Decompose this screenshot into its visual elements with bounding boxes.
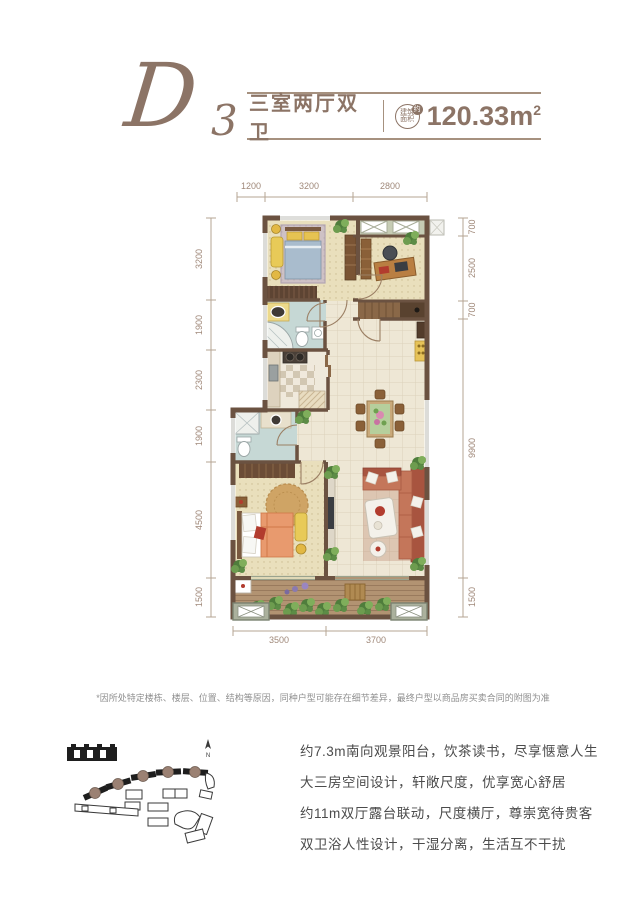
dim-right-1: 700	[467, 219, 477, 234]
north-arrow-icon: N	[205, 739, 211, 759]
highlighted-towers	[83, 767, 208, 801]
outline-buildings	[75, 773, 214, 843]
badge-approx-mark: 约	[412, 104, 423, 115]
dim-left-1: 3200	[195, 249, 204, 269]
area-value: 120.33m2	[427, 101, 541, 132]
plan-code-sub: 3	[211, 100, 238, 142]
feature-line: 双卫浴人性设计，干湿分离，生活互不干扰	[300, 837, 600, 853]
title-block: 三室两厅双卫 建筑 面积 约 120.33m2	[247, 92, 541, 140]
feature-line: 约7.3m南向观景阳台，饮茶读书，尽享惬意人生	[300, 744, 600, 760]
dim-top-2: 3200	[299, 181, 319, 191]
title-divider	[383, 100, 384, 132]
floor-plan: 1200 3200 2800 3200 1900 2300 1900 4500 …	[195, 175, 485, 645]
kitchen-slider-2	[328, 365, 331, 377]
kitchen-slider	[325, 355, 328, 367]
site-plan: N	[60, 733, 235, 861]
feature-list: 约7.3m南向观景阳台，饮茶读书，尽享惬意人生 大三房空间设计，轩敞尺度，优享宽…	[300, 744, 600, 868]
dim-left-2: 1900	[195, 315, 204, 335]
dim-right-2: 2500	[467, 258, 477, 278]
layout-label: 三室两厅双卫	[249, 87, 374, 145]
dim-bottom-2: 3700	[366, 635, 386, 645]
feature-line: 约11m双厅露台联动，尺度横厅，尊崇宽待贵客	[300, 806, 600, 822]
dim-top-1: 1200	[241, 181, 261, 191]
feature-line: 大三房空间设计，轩敞尺度，优享宽心舒居	[300, 775, 600, 791]
entry-closets	[358, 301, 427, 319]
dim-right-3: 700	[467, 302, 477, 317]
dim-left-6: 1500	[195, 587, 204, 607]
north-label: N	[206, 753, 210, 759]
dim-right-4: 9900	[467, 438, 477, 458]
dim-top-3: 2800	[380, 181, 400, 191]
dim-bottom-1: 3500	[269, 635, 289, 645]
dim-right-5: 1500	[467, 587, 477, 607]
badge-line2: 面积	[400, 116, 414, 124]
brochure-page: D 3 三室两厅双卫 建筑 面积 约 120.33m2	[0, 0, 640, 920]
building-strip	[67, 744, 117, 761]
disclaimer-text: *因所处特定楼栋、楼层、位置、结构等原因，同种户型可能存在细节差异，最终户型以商…	[0, 691, 640, 704]
dim-left-3: 2300	[195, 370, 204, 390]
dim-left-5: 4500	[195, 510, 204, 530]
plan-code: D	[121, 52, 201, 140]
dim-left-4: 1900	[195, 426, 204, 446]
area-badge-icon: 建筑 面积 约	[395, 104, 420, 129]
